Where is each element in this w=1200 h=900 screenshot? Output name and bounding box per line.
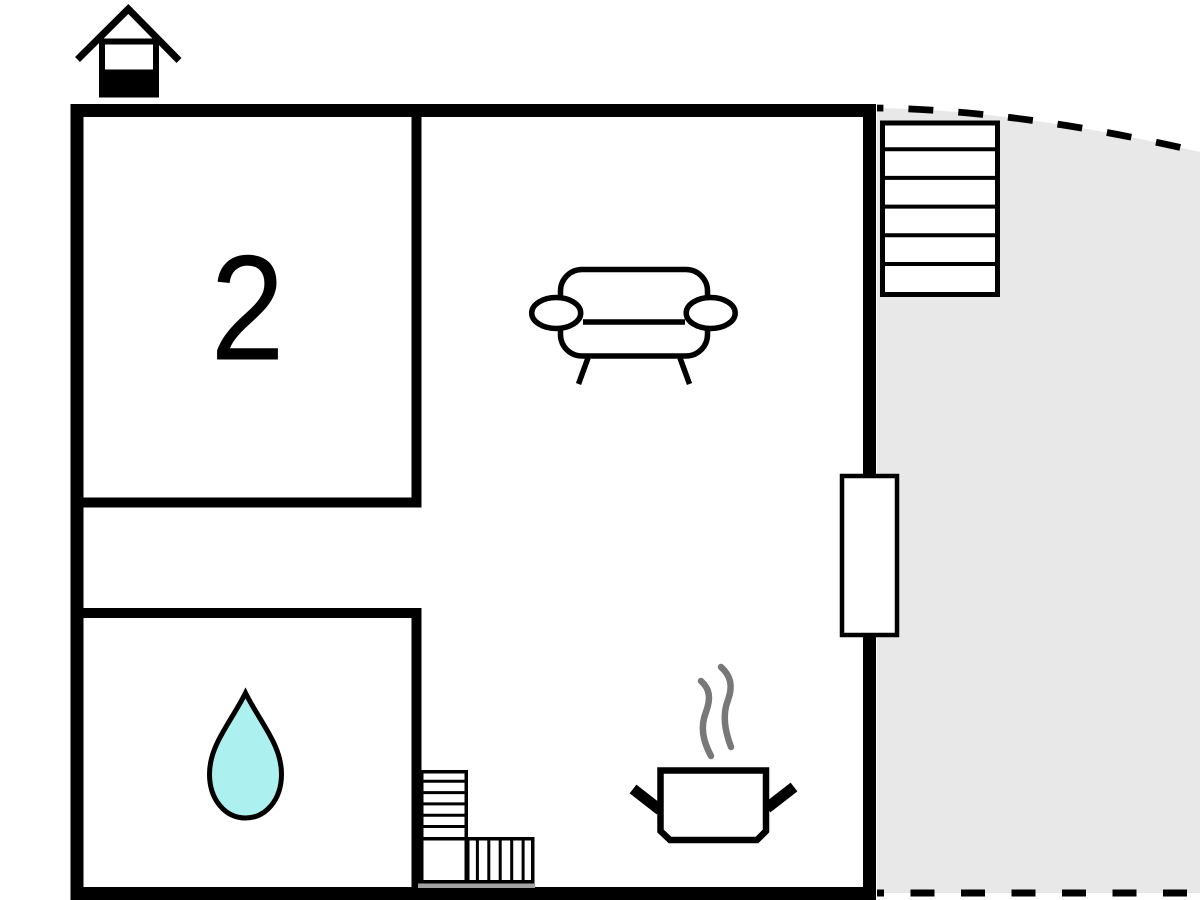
svg-text:2: 2 <box>210 224 284 392</box>
